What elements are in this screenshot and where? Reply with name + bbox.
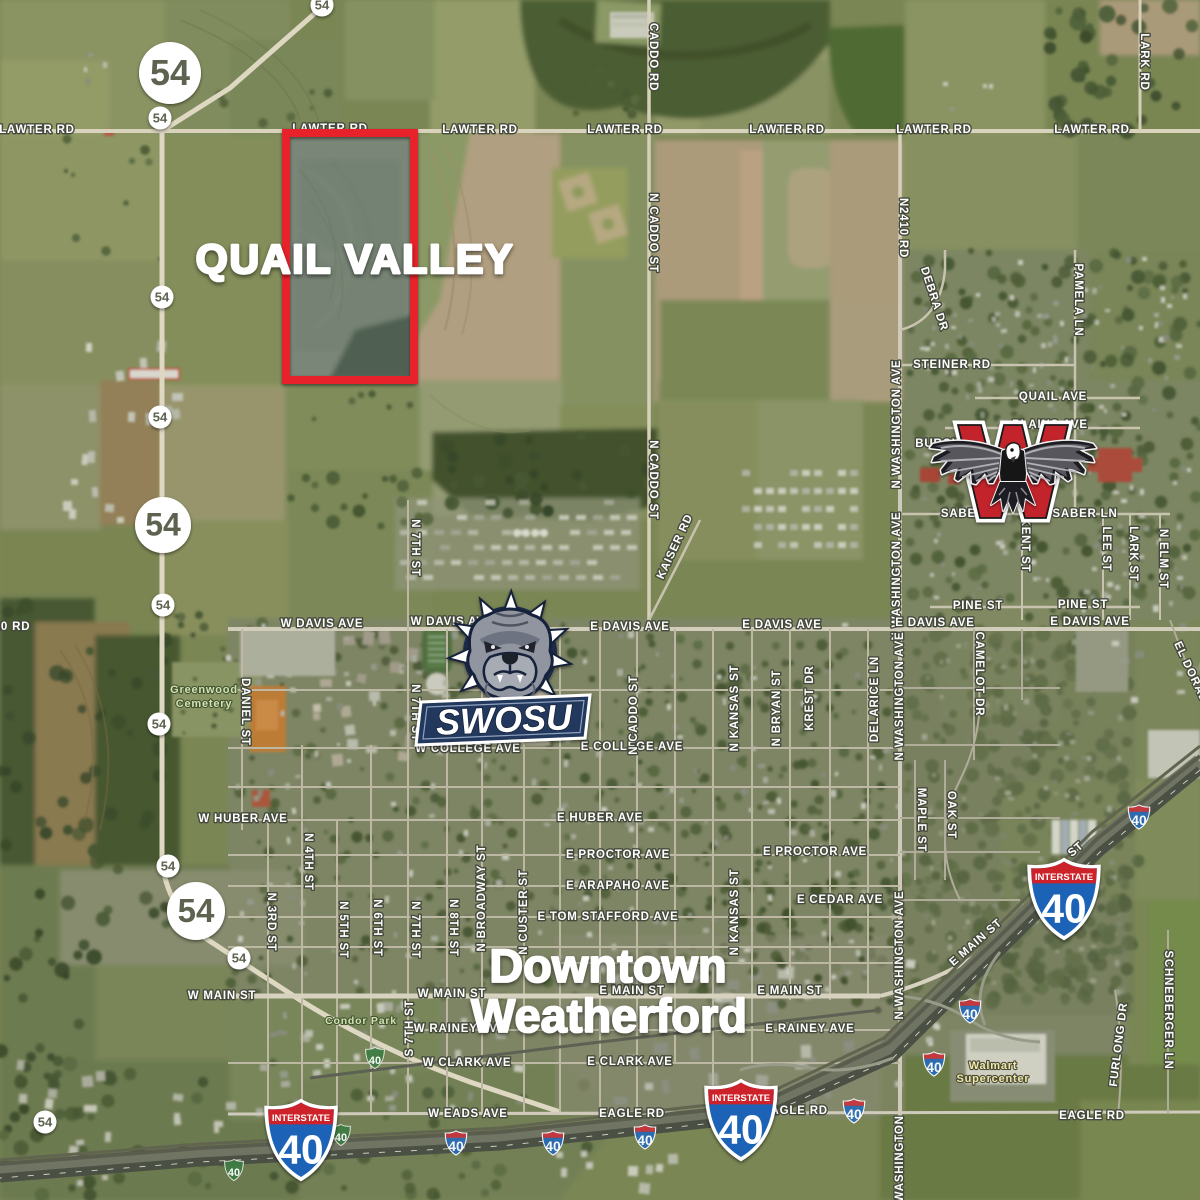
svg-text:E CLARK AVE: E CLARK AVE: [587, 1056, 672, 1068]
svg-text:40: 40: [278, 1126, 323, 1172]
svg-text:N ELM ST: N ELM ST: [1157, 529, 1169, 589]
svg-text:40: 40: [846, 1106, 862, 1122]
svg-text:N KANSAS ST: N KANSAS ST: [729, 665, 741, 752]
svg-text:Cemetery: Cemetery: [176, 698, 233, 710]
svg-text:40: 40: [718, 1106, 763, 1152]
svg-text:54: 54: [232, 951, 247, 966]
svg-text:40: 40: [228, 1167, 240, 1179]
svg-text:54: 54: [152, 717, 167, 732]
svg-text:N BROADWAY ST: N BROADWAY ST: [476, 845, 488, 952]
svg-text:LAWTER RD: LAWTER RD: [749, 124, 825, 136]
svg-text:Condor Park: Condor Park: [325, 1015, 397, 1027]
svg-text:Weatherford: Weatherford: [471, 989, 747, 1042]
svg-text:N 7TH ST: N 7TH ST: [409, 901, 421, 959]
svg-text:40: 40: [545, 1138, 561, 1154]
svg-text:W CLARK AVE: W CLARK AVE: [423, 1057, 512, 1069]
svg-text:LAWTER RD: LAWTER RD: [442, 124, 518, 136]
svg-text:E DAVIS AVE: E DAVIS AVE: [1050, 616, 1130, 628]
svg-text:Greenwood: Greenwood: [170, 684, 238, 696]
svg-text:E RAINEY AVE: E RAINEY AVE: [765, 1023, 854, 1035]
svg-text:40: 40: [1041, 885, 1086, 931]
svg-text:54: 54: [145, 507, 181, 543]
svg-text:Supercenter: Supercenter: [957, 1073, 1030, 1085]
svg-text:LARK RD: LARK RD: [1138, 33, 1150, 90]
svg-text:40: 40: [335, 1132, 347, 1144]
svg-text:W EADS AVE: W EADS AVE: [428, 1108, 508, 1120]
svg-text:N 7TH ST: N 7TH ST: [409, 519, 421, 577]
svg-text:E PROCTOR AVE: E PROCTOR AVE: [566, 849, 670, 861]
svg-text:PAMELA LN: PAMELA LN: [1072, 264, 1084, 337]
svg-text:E ARAPAHO AVE: E ARAPAHO AVE: [566, 880, 670, 892]
svg-text:STEINER RD: STEINER RD: [913, 359, 991, 371]
svg-text:LAWTER RD: LAWTER RD: [896, 124, 972, 136]
svg-text:40: 40: [1131, 812, 1147, 828]
svg-text:N 8TH ST: N 8TH ST: [447, 899, 459, 957]
svg-text:MAPLE ST: MAPLE ST: [915, 788, 927, 853]
svg-text:N KANSAS ST: N KANSAS ST: [729, 869, 741, 956]
svg-text:SWOSU: SWOSU: [435, 696, 574, 742]
svg-text:INTERSTATE: INTERSTATE: [272, 1113, 330, 1124]
svg-text:54: 54: [38, 1115, 53, 1130]
svg-text:EAGLE RD: EAGLE RD: [599, 1108, 665, 1120]
svg-text:54: 54: [315, 0, 330, 13]
svg-text:N WASHINGTON AVE: N WASHINGTON AVE: [894, 891, 906, 1020]
svg-text:PINE ST: PINE ST: [953, 600, 1003, 612]
svg-text:N2410 RD: N2410 RD: [897, 198, 909, 258]
svg-text:PINE ST: PINE ST: [1058, 599, 1108, 611]
svg-text:SCHNEBERGER LN: SCHNEBERGER LN: [1162, 950, 1174, 1069]
svg-text:E DAVIS AVE: E DAVIS AVE: [895, 617, 975, 629]
svg-text:N 5TH ST: N 5TH ST: [337, 901, 349, 959]
svg-text:E HUBER AVE: E HUBER AVE: [557, 812, 643, 824]
svg-text:54: 54: [155, 290, 170, 305]
svg-text:DANIEL ST: DANIEL ST: [239, 678, 251, 746]
svg-text:EAGLE RD: EAGLE RD: [1059, 1110, 1125, 1122]
svg-text:W HUBER AVE: W HUBER AVE: [198, 813, 287, 825]
svg-text:LARK ST: LARK ST: [1127, 526, 1139, 581]
svg-text:N 4TH ST: N 4TH ST: [302, 833, 314, 891]
svg-text:CADDO RD: CADDO RD: [647, 23, 659, 91]
svg-text:E CEDAR AVE: E CEDAR AVE: [797, 894, 883, 906]
svg-text:E TOM STAFFORD AVE: E TOM STAFFORD AVE: [537, 911, 678, 923]
svg-text:E MAIN ST: E MAIN ST: [757, 985, 822, 997]
svg-text:54: 54: [178, 892, 215, 929]
svg-text:54: 54: [161, 859, 176, 874]
svg-text:LEE ST: LEE ST: [1100, 526, 1112, 571]
svg-text:40: 40: [448, 1138, 464, 1154]
svg-text:54: 54: [156, 598, 171, 613]
svg-text:40: 40: [369, 1055, 381, 1067]
svg-text:Downtown: Downtown: [489, 939, 727, 992]
svg-text:CAMELOT DR: CAMELOT DR: [973, 632, 985, 717]
svg-text:E DAVIS AVE: E DAVIS AVE: [590, 621, 670, 633]
svg-text:N WASHINGTON AVE: N WASHINGTON AVE: [891, 360, 903, 489]
svg-text:LAWTER RD: LAWTER RD: [0, 124, 75, 136]
svg-text:40: 40: [962, 1006, 978, 1022]
svg-text:LAWTER RD: LAWTER RD: [587, 124, 663, 136]
svg-text:S WASHINGTON: S WASHINGTON: [894, 1115, 906, 1200]
svg-text:20 RD: 20 RD: [0, 621, 30, 633]
svg-text:W MAIN ST: W MAIN ST: [188, 990, 257, 1002]
svg-text:N CADDO ST: N CADDO ST: [628, 675, 640, 755]
svg-text:54: 54: [153, 111, 168, 126]
svg-text:Walmart: Walmart: [969, 1060, 1018, 1072]
svg-text:E DAVIS AVE: E DAVIS AVE: [742, 619, 822, 631]
svg-text:N 6TH ST: N 6TH ST: [371, 899, 383, 957]
svg-text:N CADDO ST: N CADDO ST: [647, 440, 659, 520]
svg-text:LAWTER RD: LAWTER RD: [1054, 124, 1130, 136]
svg-text:QUAIL AVE: QUAIL AVE: [1019, 391, 1087, 403]
svg-text:54: 54: [153, 410, 168, 425]
svg-text:KREST DR: KREST DR: [804, 665, 816, 730]
svg-text:INTERSTATE: INTERSTATE: [712, 1093, 770, 1104]
svg-text:N 3RD ST: N 3RD ST: [265, 893, 277, 952]
svg-text:W DAVIS AVE: W DAVIS AVE: [281, 618, 364, 630]
svg-text:54: 54: [150, 52, 190, 93]
svg-text:SABER LN: SABER LN: [1052, 508, 1117, 520]
svg-text:DELARICE LN: DELARICE LN: [869, 656, 881, 742]
svg-text:E PROCTOR AVE: E PROCTOR AVE: [763, 846, 867, 858]
svg-text:INTERSTATE: INTERSTATE: [1035, 872, 1093, 883]
svg-text:N BRYAN ST: N BRYAN ST: [771, 670, 783, 747]
svg-text:40: 40: [637, 1132, 653, 1148]
svg-text:OAK ST: OAK ST: [945, 791, 957, 839]
svg-text:QUAIL VALLEY: QUAIL VALLEY: [196, 236, 515, 282]
svg-text:40: 40: [926, 1059, 942, 1075]
svg-text:N WASHINGTON AVE: N WASHINGTON AVE: [894, 632, 906, 761]
svg-text:N CADDO ST: N CADDO ST: [647, 193, 659, 273]
svg-text:KENT ST: KENT ST: [1019, 518, 1031, 573]
